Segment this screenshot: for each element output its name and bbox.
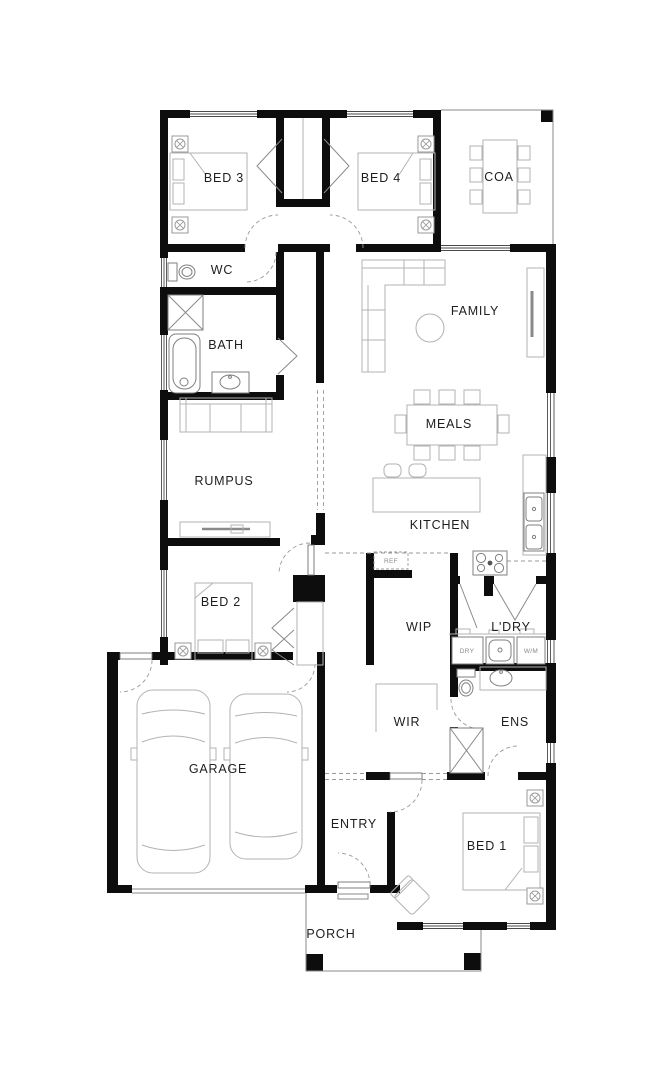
corner-marker xyxy=(418,136,434,152)
room-label-wc: WC xyxy=(211,263,233,277)
hall-door-leaf xyxy=(390,773,422,779)
family-sofa xyxy=(362,260,445,372)
garage-door-line xyxy=(132,889,305,893)
corner-marker xyxy=(175,643,191,659)
family-tv-unit xyxy=(527,268,544,357)
label-dryer: DRY xyxy=(460,648,475,655)
room-label-wip: WIP xyxy=(406,620,432,634)
room-label-wir: WIR xyxy=(394,715,421,729)
car-1 xyxy=(131,690,216,873)
floor-plan-page: BED 3 BED 4 COA WC FAMILY BATH MEALS RUM… xyxy=(0,0,664,1079)
island-bench xyxy=(373,478,480,512)
corner-marker xyxy=(527,790,543,806)
entry-chair xyxy=(390,875,430,915)
room-label-garage: GARAGE xyxy=(189,762,247,776)
room-label-bed2: BED 2 xyxy=(201,595,241,609)
corner-marker xyxy=(527,888,543,904)
car-2 xyxy=(224,694,308,859)
wc-toilet xyxy=(168,263,195,281)
rumpus-furniture xyxy=(180,398,272,537)
room-label-entry: ENTRY xyxy=(331,817,377,831)
room-label-bed4: BED 4 xyxy=(361,171,401,185)
cooktop xyxy=(473,551,507,575)
corner-marker xyxy=(172,136,188,152)
floor-plan: BED 3 BED 4 COA WC FAMILY BATH MEALS RUM… xyxy=(0,0,664,1079)
coffee-table xyxy=(416,314,444,342)
linen-doors xyxy=(494,584,536,620)
corner-marker xyxy=(255,643,271,659)
room-label-ldry: L'DRY xyxy=(491,620,531,634)
room-label-bed3: BED 3 xyxy=(204,171,244,185)
ens-fixtures xyxy=(450,667,546,773)
corner-marker xyxy=(418,217,434,233)
room-label-meals: MEALS xyxy=(426,417,472,431)
garage-side-door-leaf xyxy=(120,653,152,659)
entry-mat xyxy=(338,894,368,899)
room-label-coa: COA xyxy=(484,170,514,184)
room-label-rumpus: RUMPUS xyxy=(195,474,254,488)
room-label-kitchen: KITCHEN xyxy=(410,518,470,532)
room-label-bed1: BED 1 xyxy=(467,839,507,853)
rumpus-door-leaf xyxy=(308,545,314,575)
corner-marker xyxy=(172,217,188,233)
room-label-ens: ENS xyxy=(501,715,529,729)
label-washer: W/M xyxy=(524,648,538,655)
room-label-family: FAMILY xyxy=(451,304,499,318)
laundry-fixtures xyxy=(449,629,546,664)
front-door-leaf xyxy=(338,882,370,888)
label-fridge: REF xyxy=(384,558,398,565)
furniture xyxy=(131,118,546,915)
kitchen-fixtures xyxy=(373,455,546,575)
windows xyxy=(160,110,556,930)
bath-door-leaf xyxy=(278,338,297,374)
room-label-bath: BATH xyxy=(208,338,244,352)
room-label-porch: PORCH xyxy=(306,927,355,941)
ldry-door-leaf xyxy=(460,584,477,628)
